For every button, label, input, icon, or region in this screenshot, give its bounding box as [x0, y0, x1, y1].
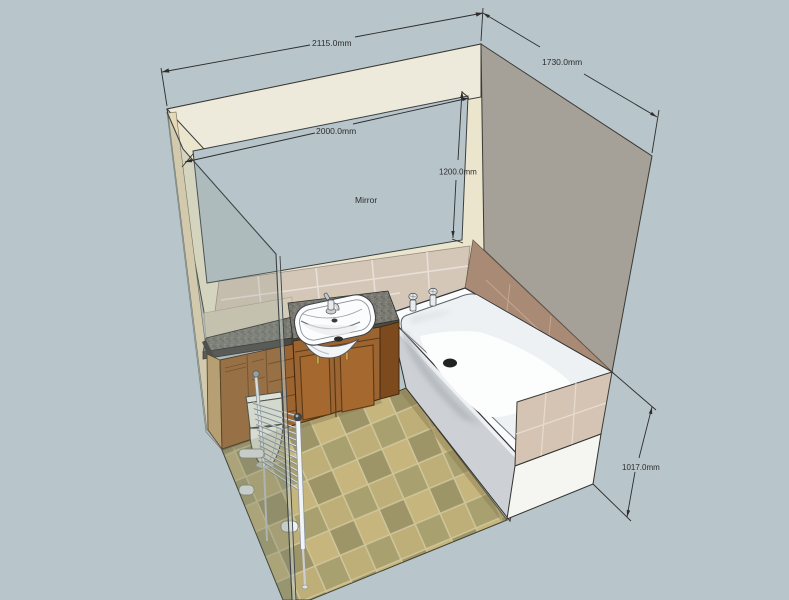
svg-text:2000.0mm: 2000.0mm — [316, 126, 356, 136]
svg-text:1200.0mm: 1200.0mm — [439, 168, 477, 177]
svg-text:Mirror: Mirror — [355, 195, 377, 205]
svg-text:1017.0mm: 1017.0mm — [622, 463, 660, 472]
svg-text:1730.0mm: 1730.0mm — [542, 57, 582, 67]
svg-text:2115.0mm: 2115.0mm — [312, 38, 352, 48]
